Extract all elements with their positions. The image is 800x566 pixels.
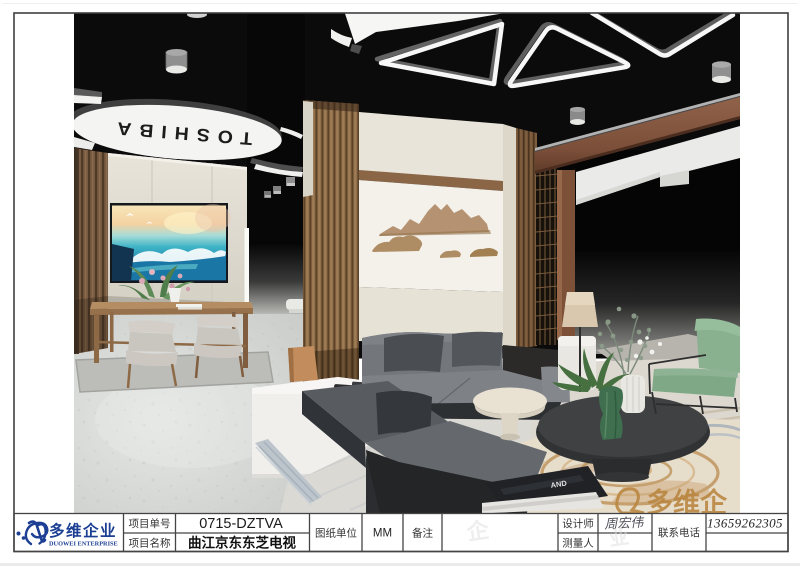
svg-text:DUOWEI ENTERPRISE: DUOWEI ENTERPRISE (49, 541, 118, 548)
svg-text:业: 业 (607, 525, 630, 551)
svg-text:备注: 备注 (412, 527, 433, 540)
svg-text:测量人: 测量人 (562, 537, 594, 550)
svg-text:0715-DZTVA: 0715-DZTVA (199, 516, 283, 532)
svg-text:项目名称: 项目名称 (129, 537, 171, 550)
svg-text:图纸单位: 图纸单位 (315, 527, 357, 540)
svg-text:设计师: 设计师 (562, 517, 594, 530)
svg-text:联系电话: 联系电话 (658, 526, 700, 539)
svg-text:多维企业: 多维企业 (49, 521, 117, 540)
svg-text:企: 企 (464, 517, 491, 545)
svg-text:曲江京东东芝电视: 曲江京东东芝电视 (188, 535, 296, 551)
svg-text:MM: MM (373, 528, 392, 540)
svg-text:项目单号: 项目单号 (129, 518, 171, 530)
svg-text:13659262305: 13659262305 (707, 516, 783, 531)
